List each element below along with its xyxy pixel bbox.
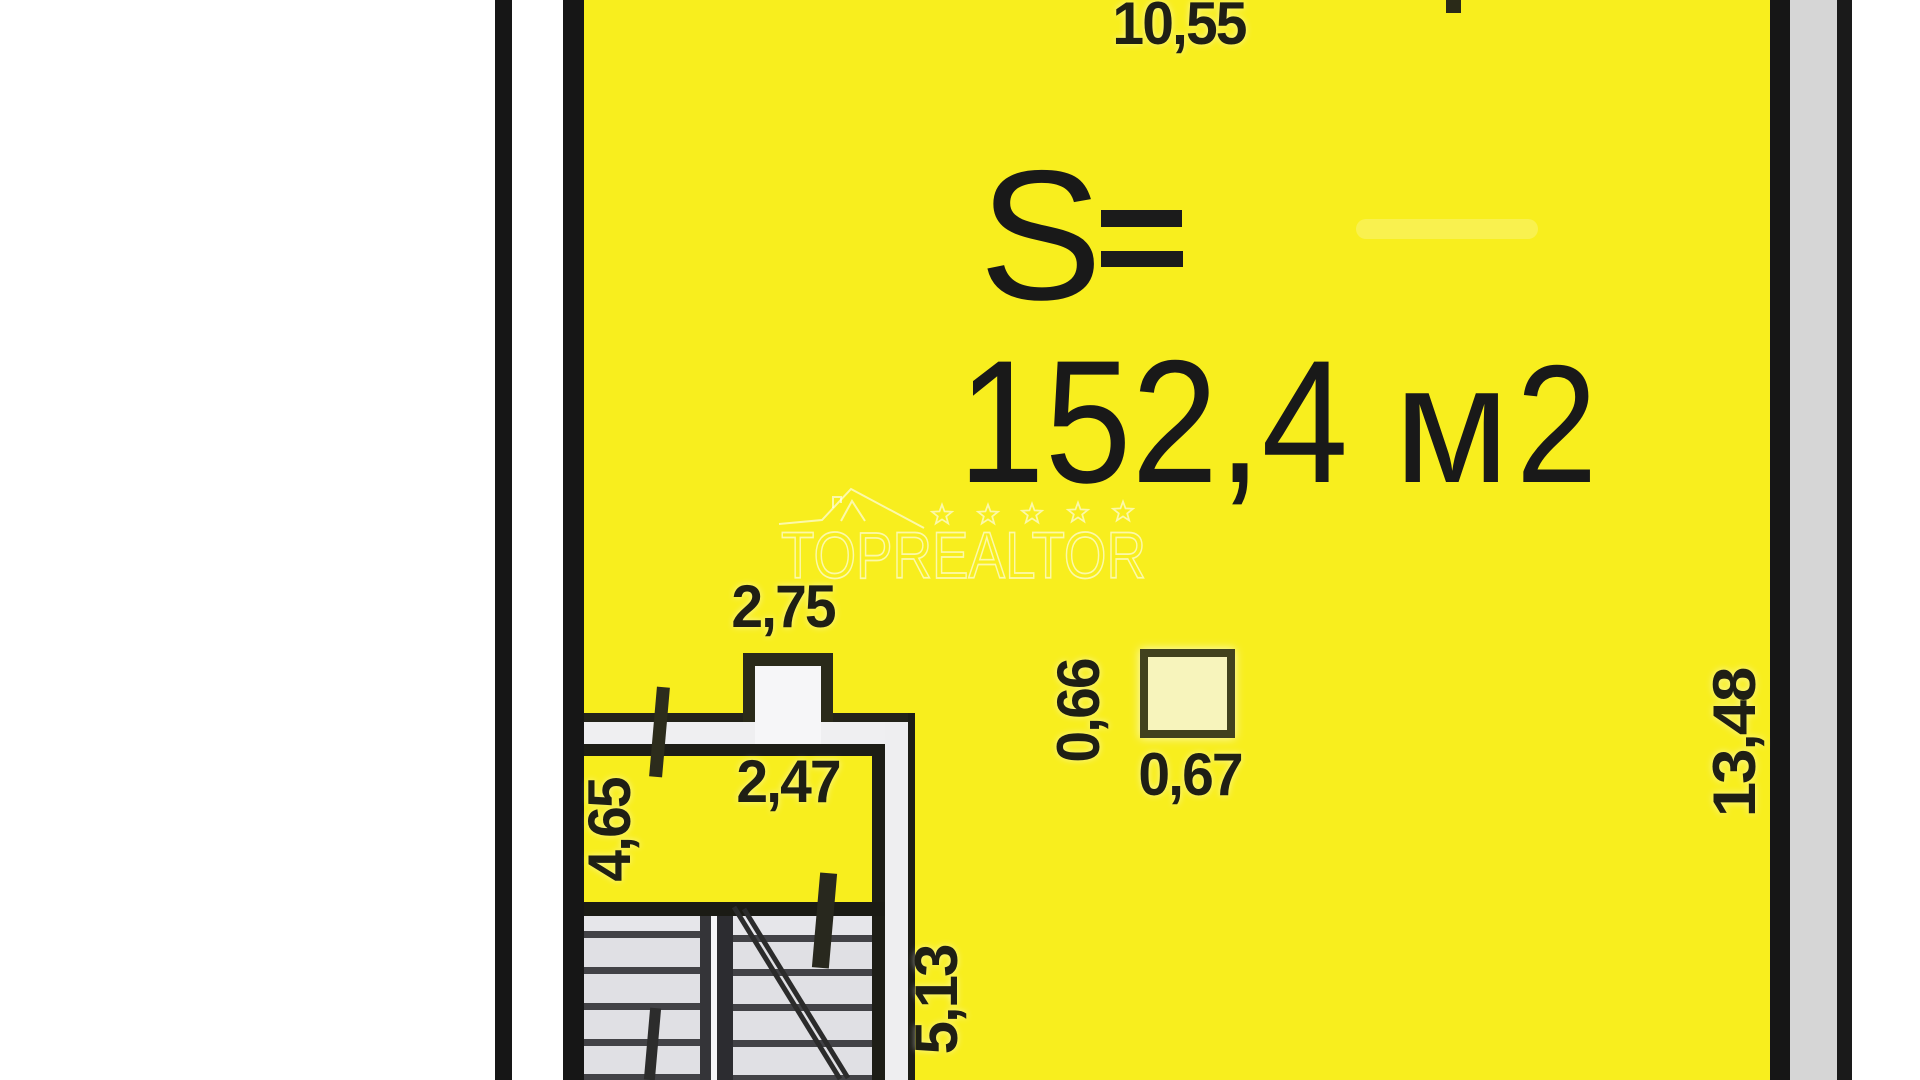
svg-text:TOPREALTOR: TOPREALTOR	[781, 518, 1146, 592]
